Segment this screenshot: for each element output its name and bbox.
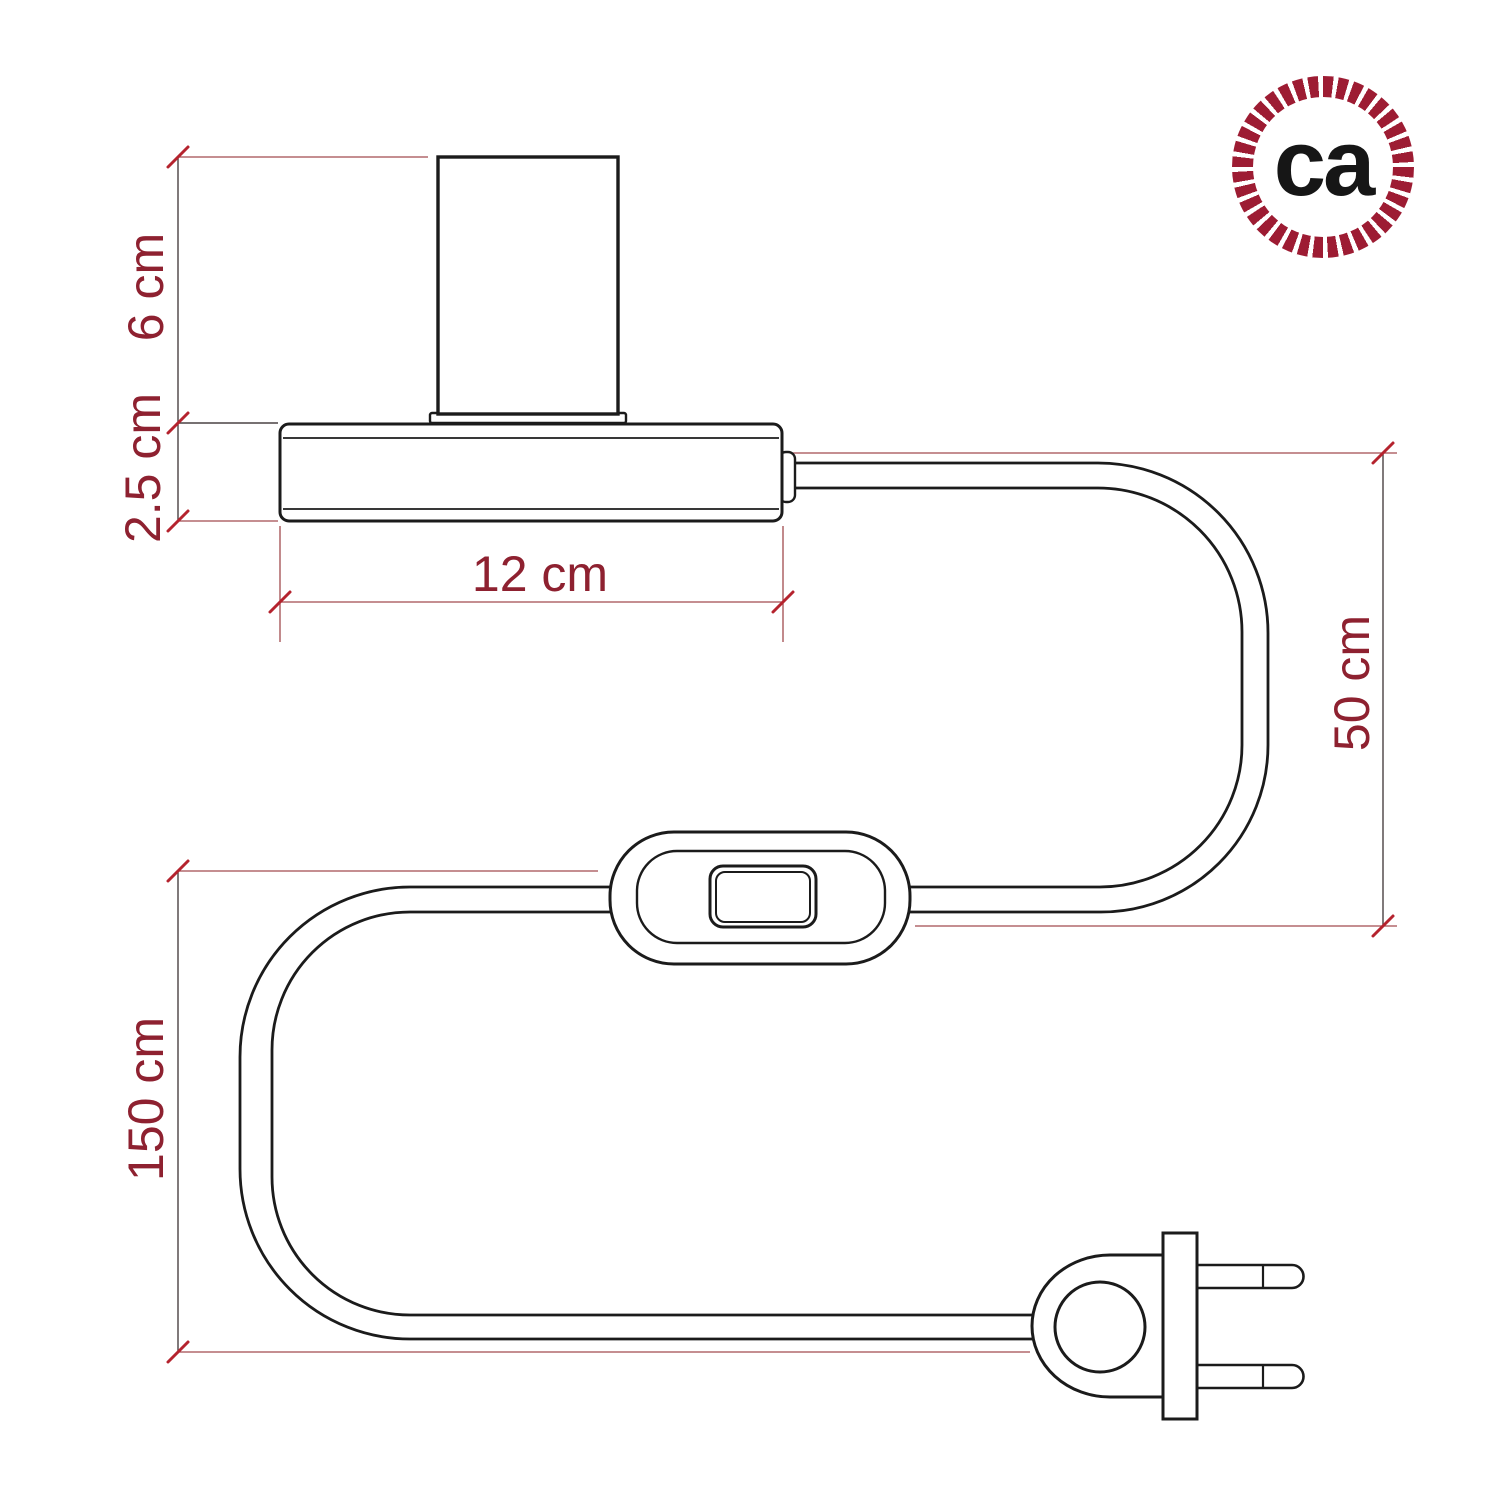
dimension-ticks (168, 147, 1393, 1362)
brand-logo-text: ca (1232, 76, 1414, 258)
label-base-height: 2.5 cm (115, 393, 171, 543)
label-socket-height: 6 cm (118, 233, 174, 341)
switch-rocker-button (710, 866, 816, 927)
dimension-drawing-canvas: 6 cm 2.5 cm 12 cm 50 cm 150 cm (0, 0, 1500, 1500)
dimension-extension-lines (178, 157, 1397, 1352)
cable-lower-inner-line (272, 912, 1042, 1315)
inline-switch (610, 832, 910, 964)
dimension-labels: 6 cm 2.5 cm 12 cm 50 cm 150 cm (115, 233, 1380, 1181)
plug-body-circle (1055, 1282, 1145, 1372)
power-plug (1032, 1233, 1304, 1419)
brand-logo: ca (1232, 76, 1414, 258)
label-cable-50: 50 cm (1324, 615, 1380, 751)
lamp-base-assembly (280, 157, 795, 521)
lamp-socket-tube (438, 157, 618, 414)
plug-pin-bottom (1197, 1365, 1304, 1388)
plug-face-plate (1163, 1233, 1197, 1419)
dimension-lines (178, 157, 1383, 1352)
label-cable-150: 150 cm (118, 1017, 174, 1181)
plug-pin-top (1197, 1265, 1304, 1288)
cable-upper-inner-line (790, 488, 1242, 887)
label-base-width: 12 cm (472, 546, 608, 602)
